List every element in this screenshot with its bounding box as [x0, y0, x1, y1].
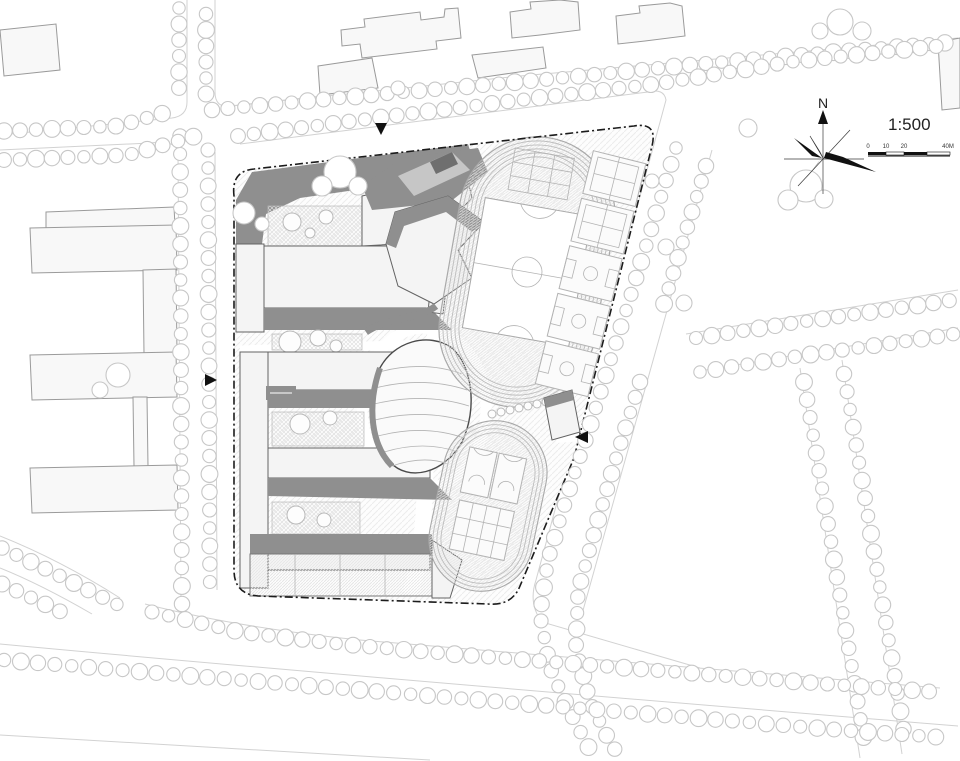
- tree-circle-icon: [844, 403, 856, 415]
- tree-circle-icon: [574, 702, 586, 714]
- tree-circle-icon: [202, 269, 215, 282]
- tree-circle-icon: [796, 374, 813, 391]
- tree-circle-icon: [909, 297, 926, 314]
- tree-circle-icon: [569, 621, 585, 637]
- tree-circle-icon: [0, 653, 11, 666]
- scale-ratio-label: 1:500: [888, 115, 931, 134]
- tree-circle-icon: [488, 694, 503, 709]
- tree-circle-icon: [635, 62, 650, 77]
- tree-circle-icon: [476, 78, 491, 93]
- tree-circle-icon: [431, 646, 444, 659]
- tree-circle-icon: [590, 511, 607, 528]
- tree-circle-icon: [589, 401, 602, 414]
- tree-circle-icon: [644, 222, 659, 237]
- tree-circle-icon: [801, 52, 817, 68]
- courtyard-tree: [287, 506, 305, 524]
- tree-circle-icon: [743, 716, 755, 728]
- tree-circle-icon: [807, 429, 819, 441]
- tree-circle-icon: [708, 712, 723, 727]
- tree-circle-icon: [203, 557, 217, 571]
- tree-circle-icon: [391, 81, 405, 95]
- tree-circle-icon: [174, 274, 186, 286]
- tree-circle-icon: [662, 282, 675, 295]
- tree-circle-icon: [233, 202, 255, 224]
- tree-circle-icon: [803, 411, 817, 425]
- tree-circle-icon: [596, 498, 609, 511]
- tree-circle-icon: [173, 2, 185, 14]
- tree-circle-icon: [612, 81, 626, 95]
- tree-circle-icon: [896, 41, 913, 58]
- tree-circle-icon: [552, 680, 565, 693]
- tree-circle-icon: [437, 102, 452, 117]
- tree-circle-icon: [420, 688, 436, 704]
- tree-circle-icon: [651, 61, 664, 74]
- tennis-court: [449, 500, 514, 561]
- tree-circle-icon: [171, 16, 187, 32]
- tree-circle-icon: [599, 727, 615, 743]
- tree-circle-icon: [108, 118, 124, 134]
- tree-circle-icon: [174, 363, 189, 378]
- tree-circle-icon: [583, 658, 598, 673]
- tree-circle-icon: [244, 626, 259, 641]
- tree-circle-icon: [380, 642, 393, 655]
- context-building: [133, 397, 148, 466]
- tree-circle-icon: [173, 183, 188, 198]
- tree-circle-icon: [610, 452, 623, 465]
- tree-circle-icon: [812, 464, 826, 478]
- tree-circle-icon: [702, 667, 716, 681]
- tree-circle-icon: [250, 674, 266, 690]
- tree-circle-icon: [351, 682, 368, 699]
- tree-circle-icon: [930, 329, 945, 344]
- tree-circle-icon: [613, 319, 629, 335]
- tree-circle-icon: [173, 290, 189, 306]
- tree-circle-icon: [571, 607, 584, 620]
- tree-circle-icon: [66, 575, 83, 592]
- tree-circle-icon: [111, 598, 123, 610]
- tree-circle-icon: [836, 366, 851, 381]
- tree-circle-icon: [550, 656, 563, 669]
- tree-circle-icon: [853, 22, 871, 40]
- courtyard-tree: [283, 213, 301, 231]
- tree-circle-icon: [92, 148, 108, 164]
- tree-circle-icon: [820, 677, 834, 691]
- tree-circle-icon: [311, 119, 323, 131]
- tree-circle-icon: [844, 724, 857, 737]
- tree-circle-icon: [25, 591, 38, 604]
- tree-circle-icon: [849, 438, 863, 452]
- tree-circle-icon: [185, 128, 202, 145]
- tree-circle-icon: [0, 541, 9, 555]
- tree-circle-icon: [44, 150, 59, 165]
- context-building: [472, 47, 546, 78]
- tree-circle-icon: [171, 134, 184, 147]
- tree-circle-icon: [580, 739, 597, 756]
- tree-circle-icon: [887, 668, 902, 683]
- tree-circle-icon: [618, 63, 634, 79]
- tree-circle-icon: [633, 253, 650, 270]
- tree-circle-icon: [81, 659, 97, 675]
- tree-circle-icon: [301, 678, 317, 694]
- tree-circle-icon: [562, 481, 578, 497]
- tree-circle-icon: [235, 674, 247, 686]
- context-building: [143, 269, 177, 354]
- tree-circle-icon: [614, 436, 628, 450]
- tree-circle-icon: [659, 75, 673, 89]
- tree-circle-icon: [455, 692, 468, 705]
- tree-circle-icon: [580, 684, 595, 699]
- tree-circle-icon: [770, 673, 783, 686]
- courtyard-tree: [319, 210, 333, 224]
- tree-circle-icon: [0, 123, 12, 139]
- tree-circle-icon: [201, 412, 217, 428]
- tree-circle-icon: [569, 466, 581, 478]
- tree-circle-icon: [785, 673, 802, 690]
- tree-circle-icon: [802, 346, 819, 363]
- tree-circle-icon: [624, 706, 637, 719]
- tree-circle-icon: [600, 660, 613, 673]
- tree-circle-icon: [333, 91, 346, 104]
- tree-circle-icon: [698, 158, 713, 173]
- tree-circle-icon: [707, 67, 722, 82]
- scale-segment: [904, 152, 927, 155]
- tree-circle-icon: [202, 431, 217, 446]
- tree-circle-icon: [838, 679, 850, 691]
- tree-circle-icon: [866, 338, 882, 354]
- tree-circle-icon: [582, 544, 596, 558]
- courtyard: [272, 502, 360, 534]
- tree-circle-icon: [53, 604, 68, 619]
- tree-circle-icon: [299, 93, 315, 109]
- tree-circle-icon: [173, 344, 189, 360]
- context-building: [341, 8, 461, 58]
- tree-circle-icon: [369, 684, 384, 699]
- tree-circle-icon: [842, 641, 856, 655]
- tree-circle-icon: [690, 332, 703, 345]
- tree-circle-icon: [312, 635, 326, 649]
- tree-circle-icon: [203, 396, 216, 409]
- scale-segment: [927, 152, 950, 155]
- tree-circle-icon: [754, 59, 769, 74]
- tree-circle-icon: [174, 596, 189, 611]
- tree-circle-icon: [556, 700, 570, 714]
- tree-circle-icon: [154, 105, 170, 121]
- tree-circle-icon: [818, 51, 832, 65]
- tree-circle-icon: [174, 524, 190, 540]
- tree-circle-icon: [227, 623, 243, 639]
- tree-circle-icon: [723, 65, 736, 78]
- tree-circle-icon: [579, 84, 596, 101]
- tree-circle-icon: [853, 679, 869, 695]
- tree-circle-icon: [13, 123, 28, 138]
- tree-circle-icon: [827, 9, 853, 35]
- tree-circle-icon: [492, 77, 505, 90]
- tree-circle-icon: [155, 138, 170, 153]
- tree-circle-icon: [198, 38, 213, 53]
- tree-circle-icon: [670, 142, 682, 154]
- tree-circle-icon: [534, 614, 548, 628]
- tree-circle-icon: [203, 503, 217, 517]
- tree-circle-icon: [725, 714, 739, 728]
- tree-circle-icon: [470, 99, 482, 111]
- tree-circle-icon: [173, 50, 186, 63]
- tree-circle-icon: [579, 560, 591, 572]
- tree-circle-icon: [640, 706, 656, 722]
- site-plan-drawing: N 1:500 0 10 20 40M: [0, 0, 960, 761]
- tree-circle-icon: [221, 102, 235, 116]
- courtyard-tree: [290, 414, 310, 434]
- tree-circle-icon: [531, 90, 547, 106]
- tree-circle-icon: [28, 150, 45, 167]
- tree-circle-icon: [548, 88, 563, 103]
- tree-circle-icon: [540, 564, 553, 577]
- tree-circle-icon: [268, 676, 282, 690]
- tree-circle-icon: [363, 640, 377, 654]
- tree-circle-icon: [336, 682, 349, 695]
- tree-circle-icon: [835, 343, 849, 357]
- tree-circle-icon: [125, 148, 138, 161]
- tree-circle-icon: [586, 527, 601, 542]
- tree-circle-icon: [913, 40, 928, 55]
- tree-circle-icon: [9, 584, 23, 598]
- tree-circle-icon: [819, 345, 834, 360]
- north-label: N: [818, 95, 828, 111]
- tree-circle-icon: [10, 548, 23, 561]
- tree-circle-icon: [174, 309, 188, 323]
- tree-circle-icon: [172, 164, 188, 180]
- tree-circle-icon: [174, 201, 187, 214]
- tree-circle-icon: [879, 615, 893, 629]
- tree-circle-icon: [784, 316, 798, 330]
- context-building: [510, 0, 580, 38]
- tree-circle-icon: [913, 730, 925, 742]
- context-building: [0, 24, 60, 76]
- tree-circle-icon: [694, 174, 708, 188]
- tree-circle-icon: [882, 634, 895, 647]
- tree-circle-icon: [704, 327, 720, 343]
- tree-circle-icon: [44, 120, 61, 137]
- tree-circle-icon: [330, 637, 342, 649]
- tree-circle-icon: [861, 509, 874, 522]
- tree-circle-icon: [892, 703, 909, 720]
- tree-circle-icon: [620, 304, 632, 316]
- site-plan: N 1:500 0 10 20 40M: [0, 0, 960, 761]
- tree-circle-icon: [720, 326, 735, 341]
- tree-circle-icon: [387, 686, 401, 700]
- tree-circle-icon: [484, 96, 500, 112]
- tree-circle-icon: [629, 270, 644, 285]
- tree-circle-icon: [922, 684, 937, 699]
- tree-circle-icon: [542, 546, 557, 561]
- tree-circle-icon: [803, 675, 818, 690]
- tree-circle-icon: [808, 445, 824, 461]
- tree-circle-icon: [212, 621, 225, 634]
- tree-circle-icon: [643, 77, 659, 93]
- courtyard-tree: [279, 331, 301, 353]
- scale-bar: 1:500 0 10 20 40M: [866, 115, 954, 156]
- tree-circle-icon: [124, 115, 138, 129]
- tree-circle-icon: [171, 64, 187, 80]
- tree-circle-icon: [669, 666, 681, 678]
- tree-circle-icon: [895, 728, 909, 742]
- tree-circle-icon: [676, 236, 689, 249]
- tree-circle-icon: [553, 515, 566, 528]
- tree-circle-icon: [389, 108, 404, 123]
- tree-circle-icon: [899, 335, 912, 348]
- tree-circle-icon: [445, 81, 458, 94]
- tree-circle-icon: [882, 45, 895, 58]
- tree-circle-icon: [0, 576, 10, 592]
- tree-circle-icon: [203, 342, 215, 354]
- tree-circle-icon: [593, 384, 608, 399]
- tree-circle-icon: [724, 360, 738, 374]
- tree-circle-icon: [77, 121, 91, 135]
- tree-circle-icon: [411, 83, 427, 99]
- tree-circle-icon: [238, 101, 250, 113]
- tree-circle-icon: [523, 73, 538, 88]
- tree-circle-icon: [879, 303, 894, 318]
- context-building: [30, 465, 178, 513]
- tree-circle-icon: [547, 529, 563, 545]
- tree-circle-icon: [755, 354, 771, 370]
- tree-circle-icon: [877, 726, 892, 741]
- tree-circle-icon: [172, 218, 189, 235]
- building-spine: [236, 244, 264, 332]
- tree-circle-icon: [278, 122, 293, 137]
- tree-circle-icon: [269, 97, 283, 111]
- tree-circle-icon: [827, 722, 842, 737]
- tree-circle-icon: [815, 190, 833, 208]
- tree-circle-icon: [364, 87, 379, 102]
- tree-circle-icon: [587, 67, 601, 81]
- tree-circle-icon: [13, 153, 26, 166]
- tree-circle-icon: [200, 232, 216, 248]
- tree-circle-icon: [437, 690, 451, 704]
- tree-circle-icon: [347, 88, 364, 105]
- tree-circle-icon: [177, 612, 193, 628]
- tree-circle-icon: [285, 96, 298, 109]
- tree-circle-icon: [316, 92, 331, 107]
- tree-circle-icon: [676, 295, 692, 311]
- tree-circle-icon: [858, 491, 873, 506]
- tree-circle-icon: [850, 694, 865, 709]
- low-roof-block: [250, 554, 432, 596]
- tree-circle-icon: [752, 671, 767, 686]
- tree-circle-icon: [174, 470, 190, 486]
- tree-circle-icon: [175, 508, 188, 521]
- tree-circle-icon: [199, 7, 212, 20]
- tree-circle-icon: [202, 216, 215, 229]
- tree-circle-icon: [202, 538, 218, 554]
- tree-circle-icon: [534, 596, 549, 611]
- tree-circle-icon: [865, 46, 880, 61]
- tree-circle-icon: [895, 301, 908, 314]
- tree-circle-icon: [801, 315, 813, 327]
- tree-circle-icon: [604, 353, 617, 366]
- context-building: [30, 225, 177, 273]
- tree-circle-icon: [174, 148, 187, 161]
- tree-circle-icon: [809, 720, 825, 736]
- tree-circle-icon: [459, 78, 475, 94]
- tree-circle-icon: [517, 93, 530, 106]
- courtyard-tree: [330, 340, 342, 352]
- tree-circle-icon: [202, 162, 214, 174]
- tree-circle-icon: [173, 398, 190, 415]
- tree-circle-icon: [200, 286, 217, 303]
- scale-segment: [886, 152, 904, 155]
- tree-circle-icon: [453, 101, 467, 115]
- tree-circle-icon: [174, 578, 191, 595]
- tree-circle-icon: [202, 323, 216, 337]
- context-building-e-shape: [30, 225, 178, 513]
- tree-circle-icon: [198, 22, 215, 39]
- tree-circle-icon: [37, 596, 53, 612]
- tree-circle-icon: [173, 236, 188, 251]
- tree-circle-icon: [342, 114, 356, 128]
- tree-circle-icon: [521, 696, 538, 713]
- tree-circle-icon: [396, 642, 412, 658]
- tree-circle-icon: [286, 678, 299, 691]
- tree-circle-icon: [172, 33, 186, 47]
- road-line: [0, 735, 430, 760]
- tree-circle-icon: [167, 668, 180, 681]
- tree-circle-icon: [175, 561, 188, 574]
- tree-circle-icon: [913, 331, 929, 347]
- tree-circle-icon: [741, 358, 754, 371]
- tree-circle-icon: [926, 295, 941, 310]
- tree-circle-icon: [659, 173, 673, 187]
- tree-circle-icon: [349, 177, 367, 195]
- tree-circle-icon: [94, 121, 106, 133]
- tree-circle-icon: [174, 489, 188, 503]
- tree-circle-icon: [501, 94, 515, 108]
- tree-circle-icon: [675, 710, 688, 723]
- courtyard-tree: [323, 411, 337, 425]
- tree-circle-icon: [81, 582, 96, 597]
- tree-circle-icon: [499, 652, 511, 664]
- tree-circle-icon: [884, 650, 900, 666]
- tree-circle-icon: [772, 352, 787, 367]
- tree-circle-icon: [817, 498, 833, 514]
- tree-circle-icon: [904, 682, 920, 698]
- tree-circle-icon: [172, 81, 187, 96]
- tree-circle-icon: [751, 320, 768, 337]
- tree-circle-icon: [78, 151, 90, 163]
- tree-circle-icon: [640, 239, 653, 252]
- tree-circle-icon: [202, 484, 217, 499]
- tree-circle-icon: [506, 696, 519, 709]
- tree-circle-icon: [603, 466, 619, 482]
- tree-circle-icon: [557, 498, 571, 512]
- tree-circle-icon: [23, 554, 39, 570]
- tree-circle-icon: [600, 482, 615, 497]
- tree-circle-icon: [676, 73, 689, 86]
- tree-circle-icon: [694, 366, 706, 378]
- tree-circle-icon: [255, 217, 269, 231]
- tree-circle-icon: [261, 123, 278, 140]
- tree-circle-icon: [883, 336, 897, 350]
- tree-circle-icon: [708, 362, 724, 378]
- tree-circle-icon: [203, 449, 216, 462]
- tree-circle-icon: [556, 72, 568, 84]
- tree-circle-icon: [852, 342, 864, 354]
- tree-circle-icon: [854, 472, 870, 488]
- tree-circle-icon: [174, 435, 188, 449]
- tree-circle-icon: [538, 631, 550, 643]
- scale-tick-label: 10: [883, 144, 890, 150]
- tree-circle-icon: [837, 607, 849, 619]
- tree-circle-icon: [840, 385, 854, 399]
